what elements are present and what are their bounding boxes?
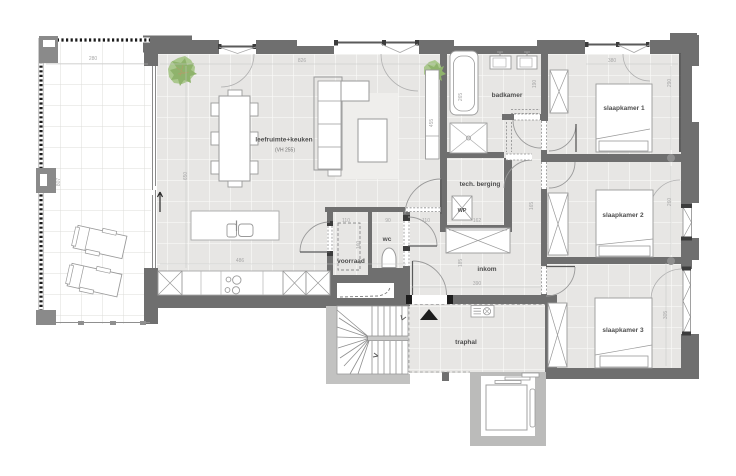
svg-text:slaapkamer 1: slaapkamer 1 [603, 105, 645, 112]
svg-text:(VH 255): (VH 255) [275, 148, 295, 154]
svg-text:WP: WP [458, 208, 467, 214]
svg-text:wc: wc [382, 236, 392, 243]
svg-text:165: 165 [529, 202, 535, 211]
svg-text:tech. berging: tech. berging [460, 181, 501, 188]
svg-text:390: 390 [473, 281, 482, 287]
svg-text:185: 185 [458, 259, 464, 268]
svg-text:inkom: inkom [477, 266, 496, 273]
svg-text:traphal: traphal [455, 339, 477, 346]
svg-text:110: 110 [422, 218, 430, 224]
svg-text:260: 260 [667, 198, 673, 207]
svg-text:90: 90 [385, 218, 391, 224]
svg-text:110: 110 [342, 218, 350, 224]
svg-text:486: 486 [236, 258, 245, 264]
svg-text:455: 455 [429, 119, 435, 128]
svg-text:badkamer: badkamer [492, 92, 523, 99]
svg-text:265: 265 [458, 93, 464, 102]
svg-text:190: 190 [532, 80, 538, 89]
svg-text:380: 380 [608, 58, 617, 64]
svg-text:slaapkamer 3: slaapkamer 3 [602, 327, 644, 334]
svg-text:826: 826 [298, 58, 307, 64]
svg-text:807: 807 [56, 178, 62, 187]
svg-text:290: 290 [667, 79, 673, 88]
svg-text:280: 280 [89, 56, 98, 62]
svg-text:160: 160 [356, 241, 362, 250]
svg-text:305: 305 [663, 311, 669, 320]
svg-text:162: 162 [473, 218, 482, 224]
svg-text:slaapkamer 2: slaapkamer 2 [602, 212, 644, 219]
svg-text:leefruimte+keuken: leefruimte+keuken [255, 137, 312, 144]
